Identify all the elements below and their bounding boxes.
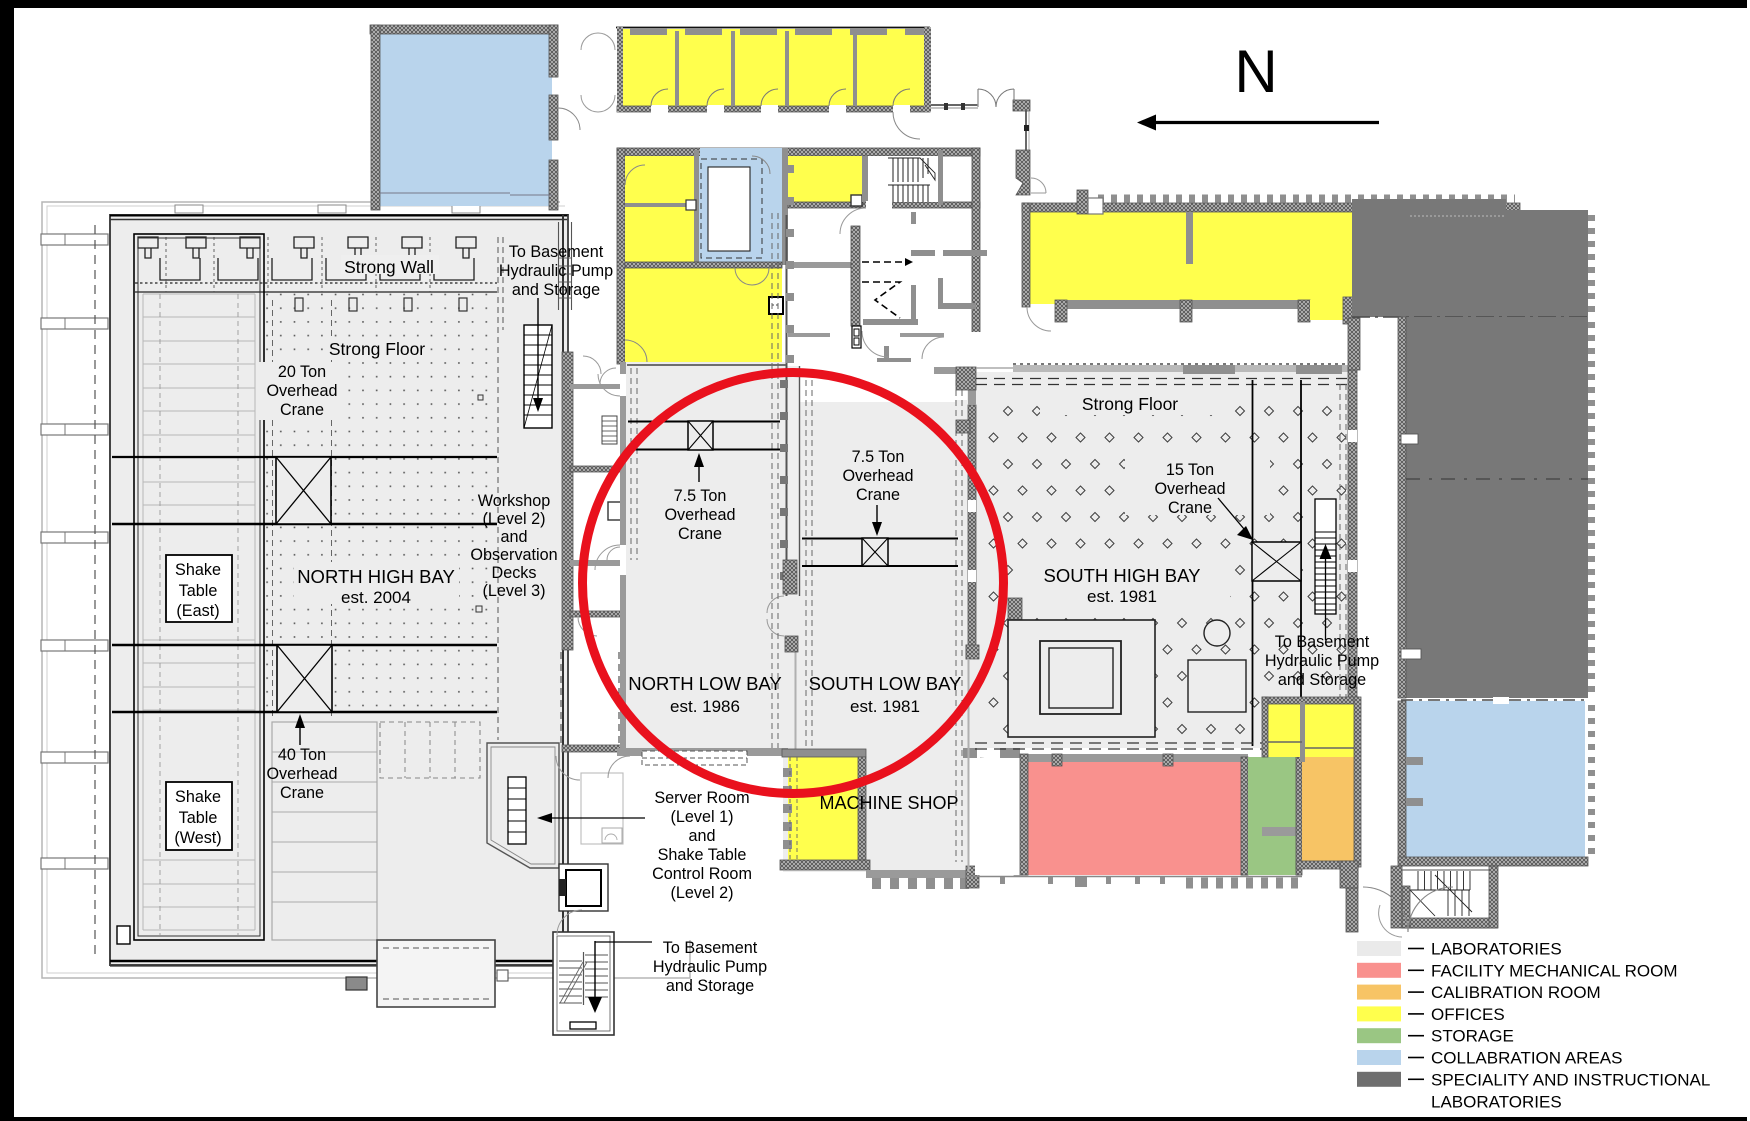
svg-text:(West): (West) — [174, 829, 221, 847]
svg-text:(Level 3): (Level 3) — [483, 582, 546, 600]
svg-text:Strong Wall: Strong Wall — [344, 257, 434, 277]
svg-text:and: and — [500, 528, 527, 546]
svg-text:Overhead: Overhead — [1154, 480, 1225, 498]
svg-text:STORAGE: STORAGE — [1431, 1027, 1514, 1046]
svg-text:Overhead: Overhead — [266, 382, 337, 400]
svg-text:CALIBRATION ROOM: CALIBRATION ROOM — [1431, 983, 1601, 1002]
svg-text:Hydraulic Pump: Hydraulic Pump — [499, 262, 613, 280]
svg-text:COLLABRATION AREAS: COLLABRATION AREAS — [1431, 1049, 1622, 1068]
svg-text:Hydraulic Pump: Hydraulic Pump — [653, 958, 767, 976]
svg-text:(Level 2): (Level 2) — [671, 884, 734, 902]
svg-text:MACHINE SHOP: MACHINE SHOP — [819, 793, 958, 813]
svg-text:Table: Table — [179, 809, 218, 827]
svg-text:est. 1981: est. 1981 — [1087, 587, 1157, 606]
svg-text:15 Ton: 15 Ton — [1166, 461, 1214, 479]
svg-text:Shake Table: Shake Table — [658, 846, 747, 864]
svg-text:LABORATORIES: LABORATORIES — [1431, 940, 1562, 959]
svg-text:Overhead: Overhead — [842, 467, 913, 485]
svg-text:NORTH LOW BAY: NORTH LOW BAY — [628, 673, 782, 694]
svg-text:(East): (East) — [176, 602, 219, 620]
svg-text:est. 1986: est. 1986 — [670, 697, 740, 716]
svg-text:and Storage: and Storage — [1278, 671, 1366, 689]
svg-text:Table: Table — [179, 582, 218, 600]
svg-text:Strong Floor: Strong Floor — [1082, 394, 1178, 414]
svg-text:Strong Floor: Strong Floor — [329, 339, 425, 359]
svg-text:To Basement: To Basement — [663, 939, 758, 957]
svg-text:Crane: Crane — [280, 784, 324, 802]
svg-text:Crane: Crane — [280, 401, 324, 419]
svg-text:Workshop: Workshop — [478, 492, 551, 510]
svg-text:est. 2004: est. 2004 — [341, 588, 411, 607]
svg-text:Crane: Crane — [856, 486, 900, 504]
svg-text:Server Room: Server Room — [654, 789, 749, 807]
svg-text:Overhead: Overhead — [266, 765, 337, 783]
svg-text:(Level 1): (Level 1) — [671, 808, 734, 826]
svg-text:and Storage: and Storage — [666, 977, 754, 995]
svg-text:Shake: Shake — [175, 788, 221, 806]
svg-text:SOUTH HIGH BAY: SOUTH HIGH BAY — [1044, 565, 1201, 586]
svg-text:Crane: Crane — [678, 525, 722, 543]
svg-text:LABORATORIES: LABORATORIES — [1431, 1092, 1562, 1111]
svg-text:and Storage: and Storage — [512, 281, 600, 299]
svg-text:7.5 Ton: 7.5 Ton — [674, 487, 727, 505]
svg-text:Shake: Shake — [175, 561, 221, 579]
svg-text:SPECIALITY AND INSTRUCTIONAL: SPECIALITY AND INSTRUCTIONAL — [1431, 1070, 1710, 1089]
svg-text:Overhead: Overhead — [664, 506, 735, 524]
svg-text:Decks: Decks — [492, 564, 537, 582]
svg-text:NORTH HIGH BAY: NORTH HIGH BAY — [297, 566, 455, 587]
svg-text:20 Ton: 20 Ton — [278, 363, 326, 381]
svg-text:Hydraulic Pump: Hydraulic Pump — [1265, 652, 1379, 670]
svg-text:7.5 Ton: 7.5 Ton — [852, 448, 905, 466]
svg-text:SOUTH LOW BAY: SOUTH LOW BAY — [809, 673, 962, 694]
svg-text:Observation: Observation — [470, 546, 557, 564]
svg-text:40 Ton: 40 Ton — [278, 746, 326, 764]
svg-text:To Basement: To Basement — [1275, 633, 1370, 651]
svg-text:N: N — [1234, 38, 1277, 105]
svg-text:FACILITY MECHANICAL ROOM: FACILITY MECHANICAL ROOM — [1431, 961, 1678, 980]
svg-text:and: and — [688, 827, 715, 845]
svg-text:(Level 2): (Level 2) — [483, 510, 546, 528]
svg-text:Control Room: Control Room — [652, 865, 752, 883]
svg-text:est. 1981: est. 1981 — [850, 697, 920, 716]
svg-text:OFFICES: OFFICES — [1431, 1005, 1505, 1024]
svg-text:Crane: Crane — [1168, 499, 1212, 517]
svg-text:To Basement: To Basement — [509, 243, 604, 261]
